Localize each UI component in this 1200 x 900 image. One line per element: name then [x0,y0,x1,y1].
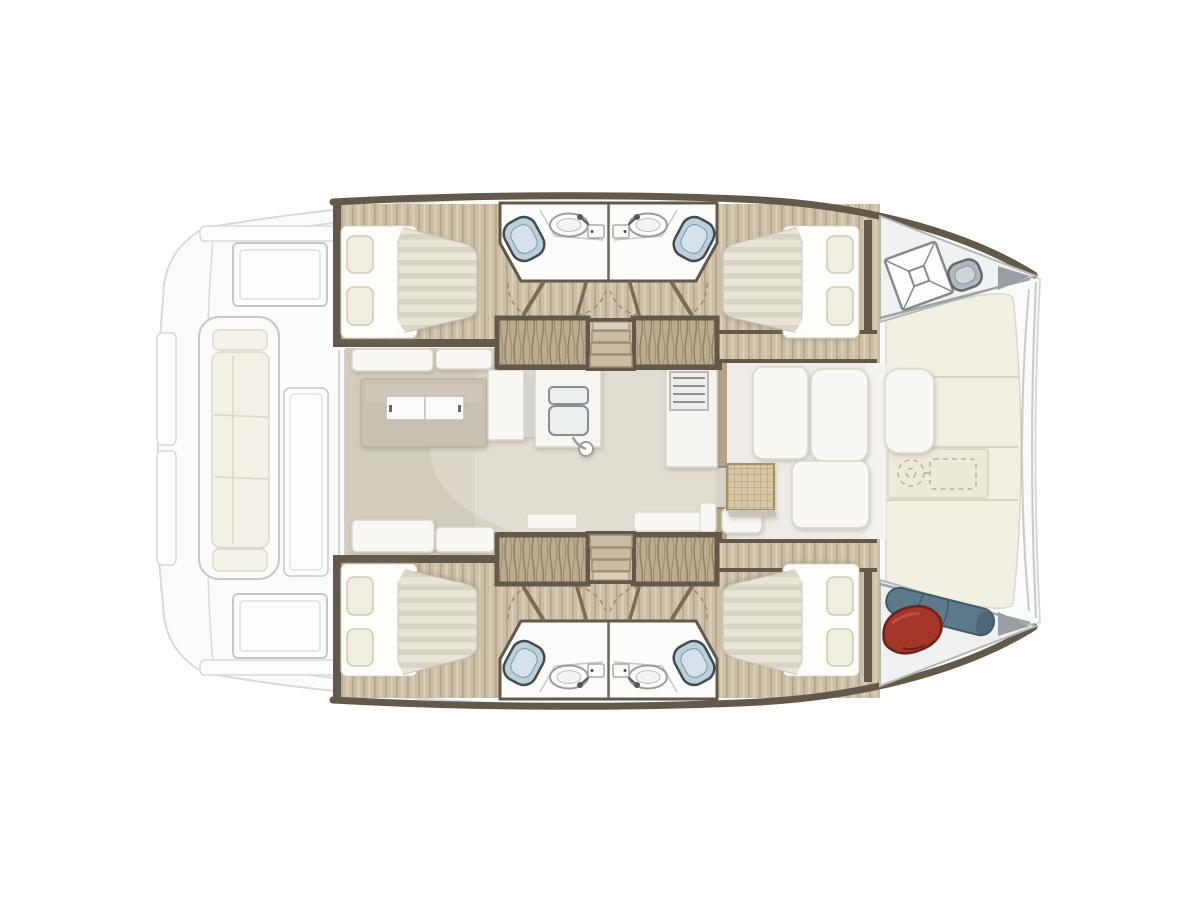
cockpit-bench-sofa [199,317,279,579]
sink-basin [549,406,588,435]
catamaran-floor-plan [0,0,1200,900]
aft-crossbeam [200,226,340,241]
woven-top-table [727,464,777,517]
stove-unit [666,368,717,467]
forward-bulkhead [716,362,728,467]
table-handle [458,405,461,412]
seat [753,367,808,459]
bench-bottom [700,503,716,532]
seat [792,461,869,528]
floor-plan-canvas [0,0,1200,900]
bench-end-pad [213,549,267,571]
cockpit-table [284,388,328,576]
windlass-recess [888,449,988,498]
galley-island [361,379,487,447]
sink-basin [549,387,588,404]
cockpit-box-bottom [233,594,327,658]
aft-crossbeam [200,660,340,675]
table-side-shade [727,510,777,517]
stern-swim-step [157,451,176,565]
bench-cushion [212,352,269,548]
seat [811,369,868,461]
saloon [345,348,770,556]
galley-cabinet-side [524,378,535,437]
galley-cabinet [488,370,524,440]
table-handle [389,405,392,412]
bench-end-pad [213,330,267,350]
cockpit-box-top [233,243,327,306]
bench-bottom [527,514,577,529]
sofa-top [352,349,492,371]
stern-swim-step [157,333,176,445]
seat [885,369,934,453]
bench-bottom [634,512,702,531]
